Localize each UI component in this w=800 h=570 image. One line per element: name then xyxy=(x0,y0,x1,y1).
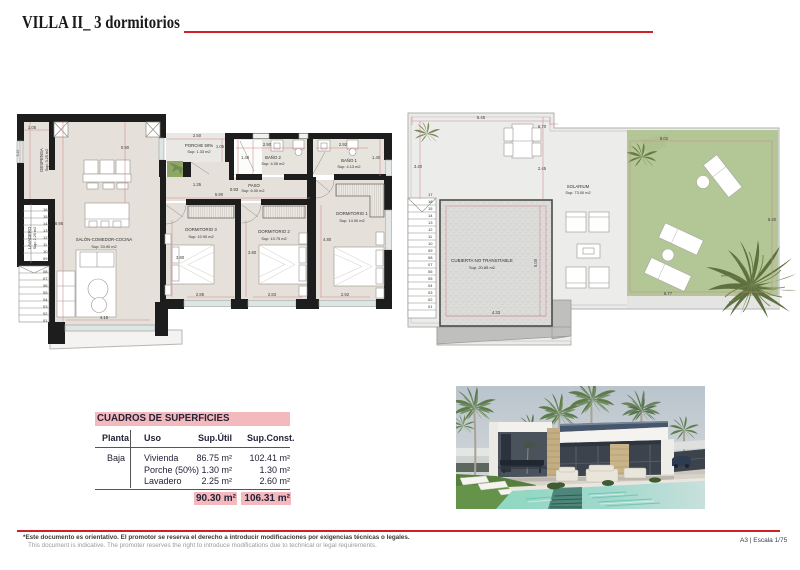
svg-text:Sup: 3.25 m2: Sup: 3.25 m2 xyxy=(45,149,49,172)
svg-text:Sup: 33.90 m2: Sup: 33.90 m2 xyxy=(91,244,116,249)
svg-text:15: 15 xyxy=(428,206,433,211)
svg-text:Sup: 14.00 m2: Sup: 14.00 m2 xyxy=(339,218,364,223)
svg-text:03: 03 xyxy=(428,290,433,295)
svg-text:2.45: 2.45 xyxy=(538,166,547,171)
svg-text:CUBIERTA NO TRANSITABLE: CUBIERTA NO TRANSITABLE xyxy=(451,258,513,263)
svg-text:DORMITORIO 1: DORMITORIO 1 xyxy=(336,211,368,216)
svg-text:08: 08 xyxy=(428,255,433,260)
svg-text:3.10: 3.10 xyxy=(16,150,20,157)
svg-text:01: 01 xyxy=(43,318,48,323)
svg-text:12: 12 xyxy=(428,227,433,232)
svg-text:3.80: 3.80 xyxy=(248,250,257,255)
svg-text:3.80: 3.80 xyxy=(176,255,185,260)
svg-text:4.15: 4.15 xyxy=(100,315,109,320)
svg-text:05: 05 xyxy=(43,290,48,295)
svg-text:1.35: 1.35 xyxy=(193,182,202,187)
svg-text:8.02: 8.02 xyxy=(660,136,669,141)
svg-text:Sup: 10.75 m2: Sup: 10.75 m2 xyxy=(261,236,286,241)
svg-text:2.90: 2.90 xyxy=(263,142,272,147)
svg-text:04: 04 xyxy=(43,297,48,302)
svg-text:Sup: 1.33 m2: Sup: 1.33 m2 xyxy=(187,149,210,154)
svg-text:1.05: 1.05 xyxy=(216,144,225,149)
svg-text:6.77: 6.77 xyxy=(664,291,673,296)
svg-text:6.40: 6.40 xyxy=(768,217,777,222)
svg-text:BAÑO 1: BAÑO 1 xyxy=(341,158,357,163)
svg-text:07: 07 xyxy=(43,276,48,281)
svg-text:02: 02 xyxy=(43,311,48,316)
svg-text:04: 04 xyxy=(428,283,433,288)
svg-text:Sup: 4.13 m2: Sup: 4.13 m2 xyxy=(337,164,360,169)
svg-text:Sup: 73.00 m2: Sup: 73.00 m2 xyxy=(565,190,590,195)
svg-text:SALÓN-COMEDOR-COCINA: SALÓN-COMEDOR-COCINA xyxy=(76,237,133,242)
svg-text:02: 02 xyxy=(428,297,433,302)
svg-text:DORMITORIO 3: DORMITORIO 3 xyxy=(185,227,217,232)
svg-text:06: 06 xyxy=(428,269,433,274)
svg-text:06: 06 xyxy=(43,283,48,288)
svg-text:4.80: 4.80 xyxy=(323,237,332,242)
svg-text:5.45: 5.45 xyxy=(477,115,486,120)
svg-text:15: 15 xyxy=(43,214,48,219)
svg-text:16: 16 xyxy=(428,199,433,204)
svg-text:10: 10 xyxy=(43,249,48,254)
svg-text:01: 01 xyxy=(428,304,433,309)
svg-text:Sup: 4.05 m2: Sup: 4.05 m2 xyxy=(261,161,284,166)
svg-text:2.83: 2.83 xyxy=(268,292,277,297)
svg-text:2.50: 2.50 xyxy=(193,133,202,138)
svg-text:07: 07 xyxy=(428,262,433,267)
svg-text:5.90: 5.90 xyxy=(215,192,224,197)
svg-text:1.40: 1.40 xyxy=(372,155,381,160)
svg-text:2.92: 2.92 xyxy=(341,292,350,297)
svg-text:2.85: 2.85 xyxy=(196,292,205,297)
svg-text:4.33: 4.33 xyxy=(492,310,501,315)
svg-text:PORCHE 50%: PORCHE 50% xyxy=(185,143,213,148)
svg-text:DESPENSA: DESPENSA xyxy=(39,148,44,172)
svg-text:3.40: 3.40 xyxy=(414,164,423,169)
svg-text:8.95: 8.95 xyxy=(55,221,64,226)
svg-text:03: 03 xyxy=(43,304,48,309)
svg-text:10: 10 xyxy=(428,241,433,246)
svg-text:DORMITORIO 2: DORMITORIO 2 xyxy=(258,229,290,234)
svg-text:1.40: 1.40 xyxy=(241,155,250,160)
svg-text:6.70: 6.70 xyxy=(538,124,547,129)
svg-text:14: 14 xyxy=(43,221,48,226)
svg-text:5.00: 5.00 xyxy=(533,258,538,267)
svg-text:09: 09 xyxy=(43,256,48,261)
svg-text:09: 09 xyxy=(428,248,433,253)
svg-text:Sup: 6.00 m2: Sup: 6.00 m2 xyxy=(241,188,264,193)
svg-text:16: 16 xyxy=(43,207,48,212)
svg-text:Sup: 2.25 m2: Sup: 2.25 m2 xyxy=(33,227,37,250)
svg-text:Sup: 20.85 m2: Sup: 20.85 m2 xyxy=(469,265,496,270)
svg-text:14: 14 xyxy=(428,213,433,218)
svg-text:13: 13 xyxy=(428,220,433,225)
svg-text:0.90: 0.90 xyxy=(121,145,130,150)
svg-text:17: 17 xyxy=(428,192,433,197)
svg-text:08: 08 xyxy=(43,269,48,274)
svg-text:LAVADERO: LAVADERO xyxy=(27,226,32,249)
svg-text:BAÑO 2: BAÑO 2 xyxy=(265,155,281,160)
svg-text:Sup: 10.90 m2: Sup: 10.90 m2 xyxy=(188,234,213,239)
svg-text:0.93: 0.93 xyxy=(230,187,239,192)
svg-text:1.05: 1.05 xyxy=(28,125,37,130)
svg-text:SOLARIUM: SOLARIUM xyxy=(567,184,590,189)
svg-text:2.92: 2.92 xyxy=(339,142,348,147)
svg-text:13: 13 xyxy=(43,228,48,233)
svg-text:12: 12 xyxy=(43,235,48,240)
svg-text:05: 05 xyxy=(428,276,433,281)
